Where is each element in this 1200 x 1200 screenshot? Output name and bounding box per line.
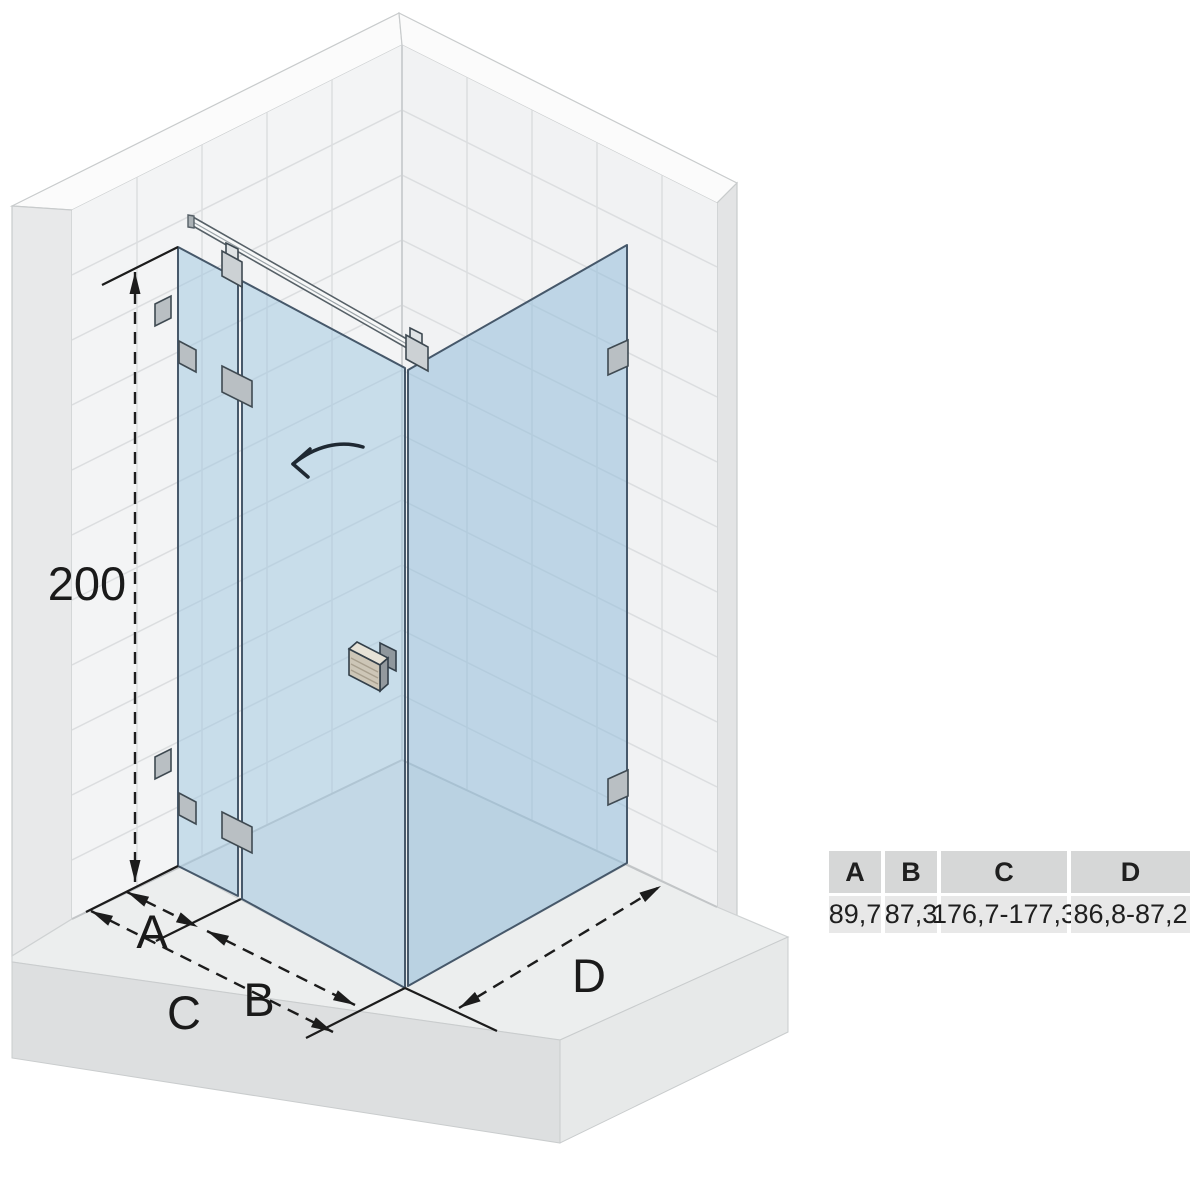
side-panel-glass xyxy=(408,245,627,986)
bar-end-cap xyxy=(188,215,194,228)
table-value-b: 87,3 xyxy=(885,896,937,933)
table-header-a: A xyxy=(829,851,881,893)
table-value-c: 176,7-177,3 xyxy=(941,896,1067,933)
shower-enclosure-diagram: 200 A B C D xyxy=(0,0,1200,1200)
dimension-d-label: D xyxy=(572,949,606,1002)
table-value-d: 86,8-87,2 xyxy=(1071,896,1190,933)
table-header-d: D xyxy=(1071,851,1190,893)
table-header-c: C xyxy=(941,851,1067,893)
right-wall-edge-face xyxy=(717,183,737,916)
dimensions-table: A B C D 89,7 87,3 176,7-177,3 86,8-87,2 xyxy=(829,851,1190,933)
dimension-b-label: B xyxy=(243,973,274,1026)
dimension-c-label: C xyxy=(167,986,201,1039)
table-value-a: 89,7 xyxy=(829,896,881,933)
dimension-a-label: A xyxy=(136,905,168,958)
height-dimension-label: 200 xyxy=(48,557,126,610)
table-header-b: B xyxy=(885,851,937,893)
door-glass xyxy=(242,281,405,988)
